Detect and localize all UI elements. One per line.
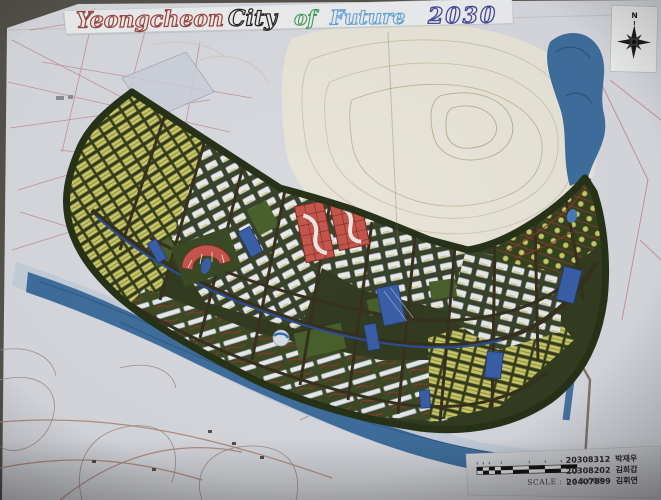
- photographed-masterplan-board: Yeongcheon City of Future 2030 N: [0, 0, 661, 500]
- central-pond: [273, 330, 289, 346]
- compass-north-label: N: [631, 11, 638, 20]
- map-scene: Yeongcheon City of Future 2030 N: [0, 0, 661, 500]
- credits-list: 20308312박재우 20308202김희갑 20407899김휘연: [566, 453, 639, 487]
- title-word-city: City: [228, 5, 279, 32]
- compass-card: N: [610, 5, 658, 72]
- credit-row: 20308312박재우: [566, 453, 638, 465]
- title-word-future: Future: [329, 5, 406, 30]
- title-word-yeongcheon: Yeongcheon: [76, 6, 224, 34]
- title-word-2030: 2030: [427, 2, 498, 29]
- title-word-of: of: [294, 6, 320, 30]
- info-card: SCALE : 1 / 3,000 20308312박재우 20308202김희…: [466, 446, 661, 498]
- credit-row: 20308202김희갑: [566, 464, 638, 476]
- credit-row: 20407899김휘연: [566, 475, 638, 487]
